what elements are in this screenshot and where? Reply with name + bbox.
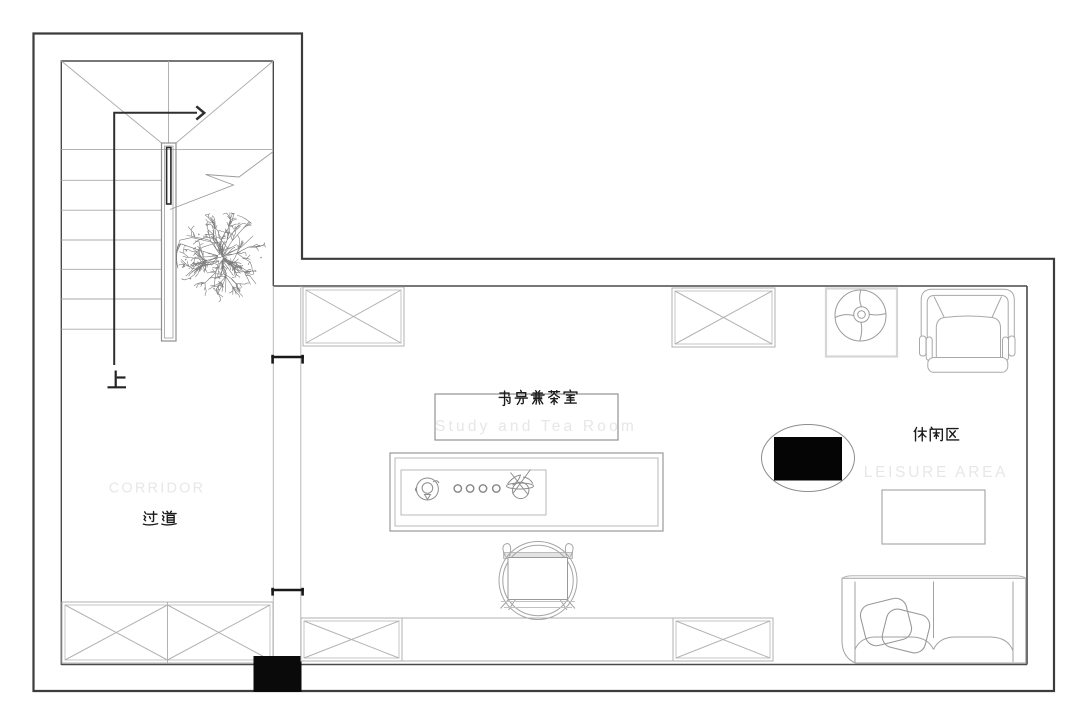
svg-text:Study and Tea Room: Study and Tea Room bbox=[435, 418, 637, 435]
svg-text:CORRIDOR: CORRIDOR bbox=[109, 481, 206, 497]
svg-text:LEISURE AREA: LEISURE AREA bbox=[864, 464, 1008, 481]
